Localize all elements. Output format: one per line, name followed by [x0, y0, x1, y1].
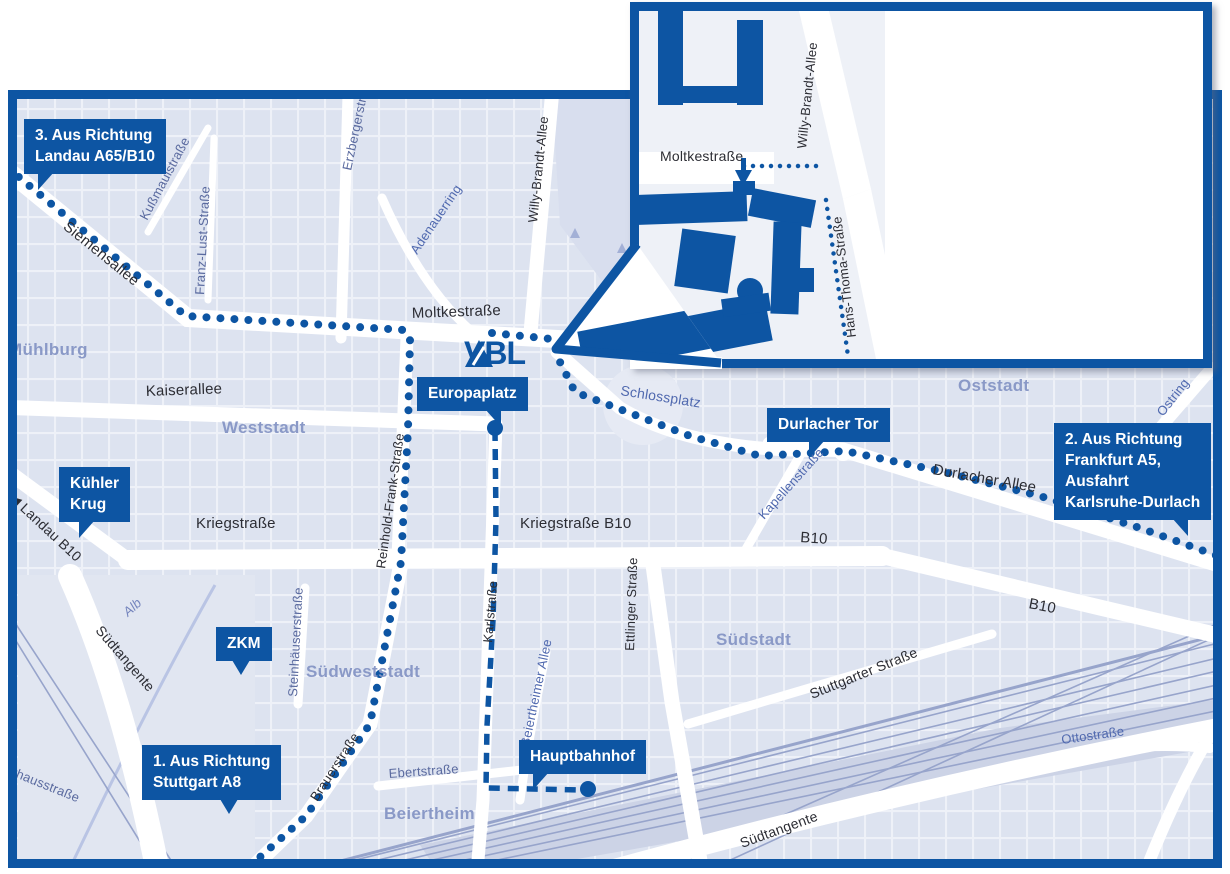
district-label: Beiertheim: [384, 804, 475, 824]
street-label: Kriegstraße: [196, 515, 276, 532]
marker-line: Karlsruhe-Durlach: [1065, 492, 1200, 513]
marker-line: Ausfahrt: [1065, 471, 1200, 492]
marker-pointer: [220, 799, 238, 814]
marker-line: Europaplatz: [428, 383, 517, 404]
marker-pointer: [232, 660, 250, 675]
map-marker-stuttgart: 1. Aus RichtungStuttgart A8: [142, 745, 281, 800]
map-marker-durlacher-tor: Durlacher Tor: [767, 408, 890, 442]
marker-line: 2. Aus Richtung: [1065, 429, 1200, 450]
marker-pointer: [38, 172, 54, 190]
district-label: Mühlburg: [8, 340, 88, 360]
marker-line: Kühler: [70, 473, 119, 494]
marker-line: Krug: [70, 494, 119, 515]
address-inset-callout: MoltkestraßeWilly-Brandt-AlleeHans-Thoma…: [630, 2, 1212, 368]
street-label: Moltkestraße: [412, 302, 502, 322]
marker-line: 3. Aus Richtung: [35, 125, 155, 146]
inset-street-label: Moltkestraße: [660, 148, 743, 164]
marker-line: Hauptbahnhof: [530, 746, 635, 767]
map-marker-landau: 3. Aus RichtungLandau A65/B10: [24, 119, 166, 174]
marker-line: Durlacher Tor: [778, 414, 879, 435]
marker-pointer: [533, 772, 549, 790]
district-label: Oststadt: [958, 376, 1029, 396]
location-dot-hauptbahnhof: [580, 781, 596, 797]
map-marker-europaplatz: Europaplatz: [417, 377, 528, 411]
district-label: Südweststadt: [306, 662, 420, 682]
street-label: Kriegstraße B10: [520, 515, 631, 532]
map-marker-frankfurt: 2. Aus RichtungFrankfurt A5,AusfahrtKarl…: [1054, 423, 1211, 520]
vbl-logo: VBL: [464, 338, 525, 368]
marker-line: Frankfurt A5,: [1065, 450, 1200, 471]
inset-map-art: [630, 2, 1212, 368]
marker-line: ZKM: [227, 633, 261, 654]
street-label: B10: [800, 529, 828, 548]
map-marker-hauptbahnhof: Hauptbahnhof: [519, 740, 646, 774]
street-label: Kaiserallee: [146, 380, 223, 400]
district-label: Südstadt: [716, 630, 791, 650]
marker-pointer: [809, 440, 825, 458]
map-marker-zkm: ZKM: [216, 627, 272, 661]
district-label: Weststadt: [222, 418, 306, 438]
marker-line: 1. Aus Richtung: [153, 751, 270, 772]
marker-pointer: [1172, 518, 1188, 536]
marker-pointer: [485, 409, 501, 427]
marker-line: Stuttgart A8: [153, 772, 270, 793]
marker-pointer: [79, 520, 95, 538]
marker-line: Landau A65/B10: [35, 146, 155, 167]
map-marker-kuehler-krug: KühlerKrug: [59, 467, 130, 522]
vbl-triangle-icon: [464, 338, 494, 368]
